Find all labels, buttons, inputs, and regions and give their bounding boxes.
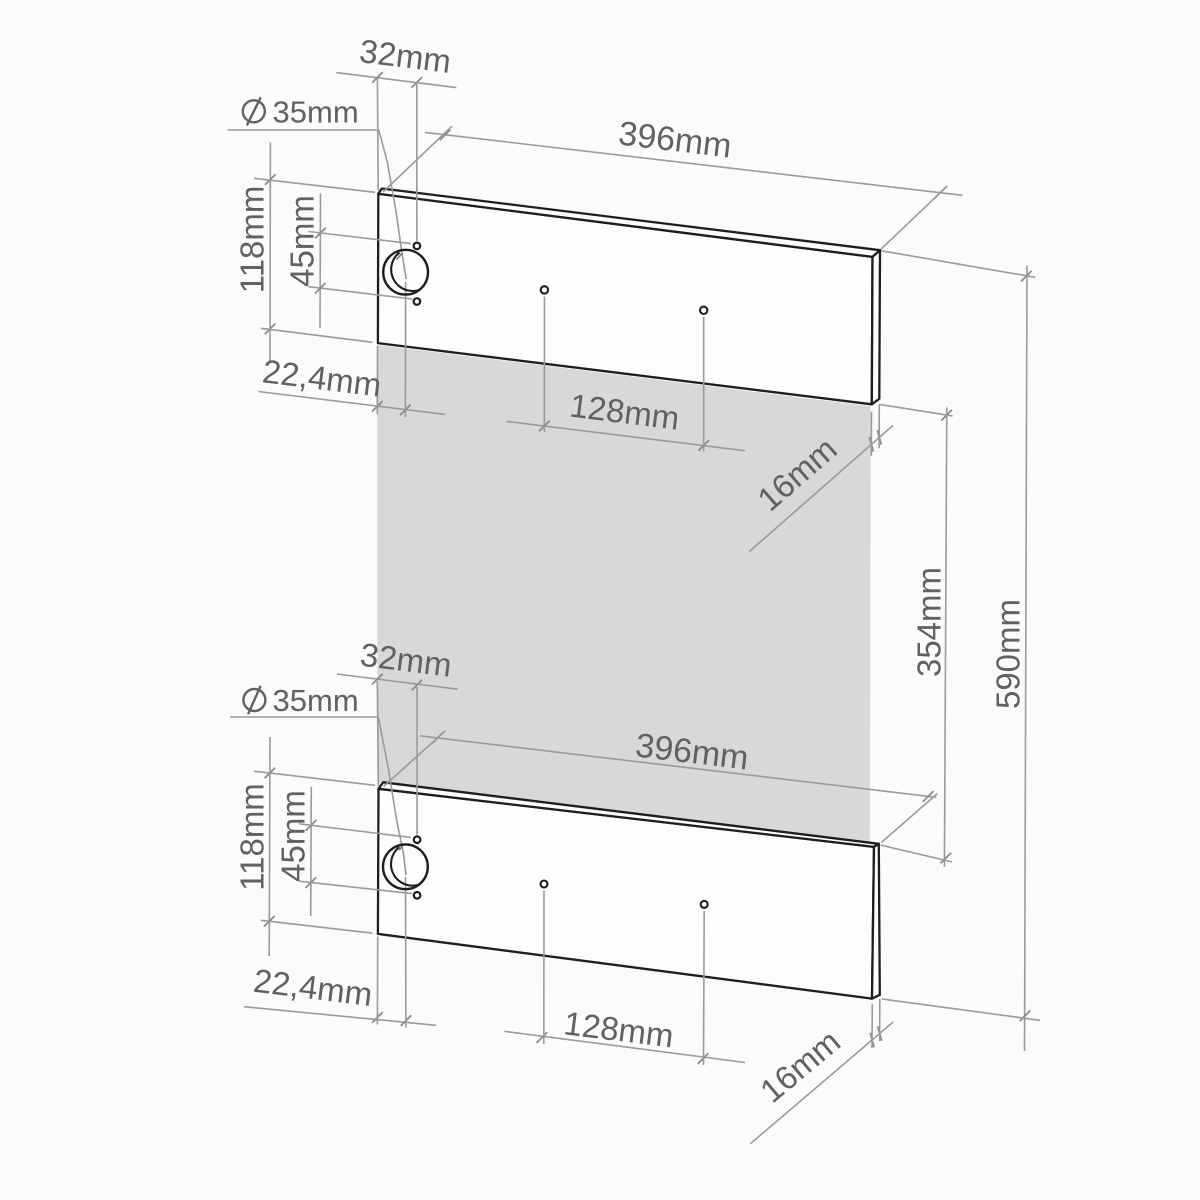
svg-text:118mm: 118mm (234, 783, 271, 891)
svg-text:35mm: 35mm (273, 683, 359, 718)
svg-text:45mm: 45mm (284, 195, 321, 287)
svg-text:590mm: 590mm (990, 599, 1027, 709)
svg-text:35mm: 35mm (273, 95, 359, 130)
svg-text:354mm: 354mm (911, 567, 948, 677)
svg-text:45mm: 45mm (275, 790, 312, 882)
svg-text:118mm: 118mm (234, 186, 271, 294)
